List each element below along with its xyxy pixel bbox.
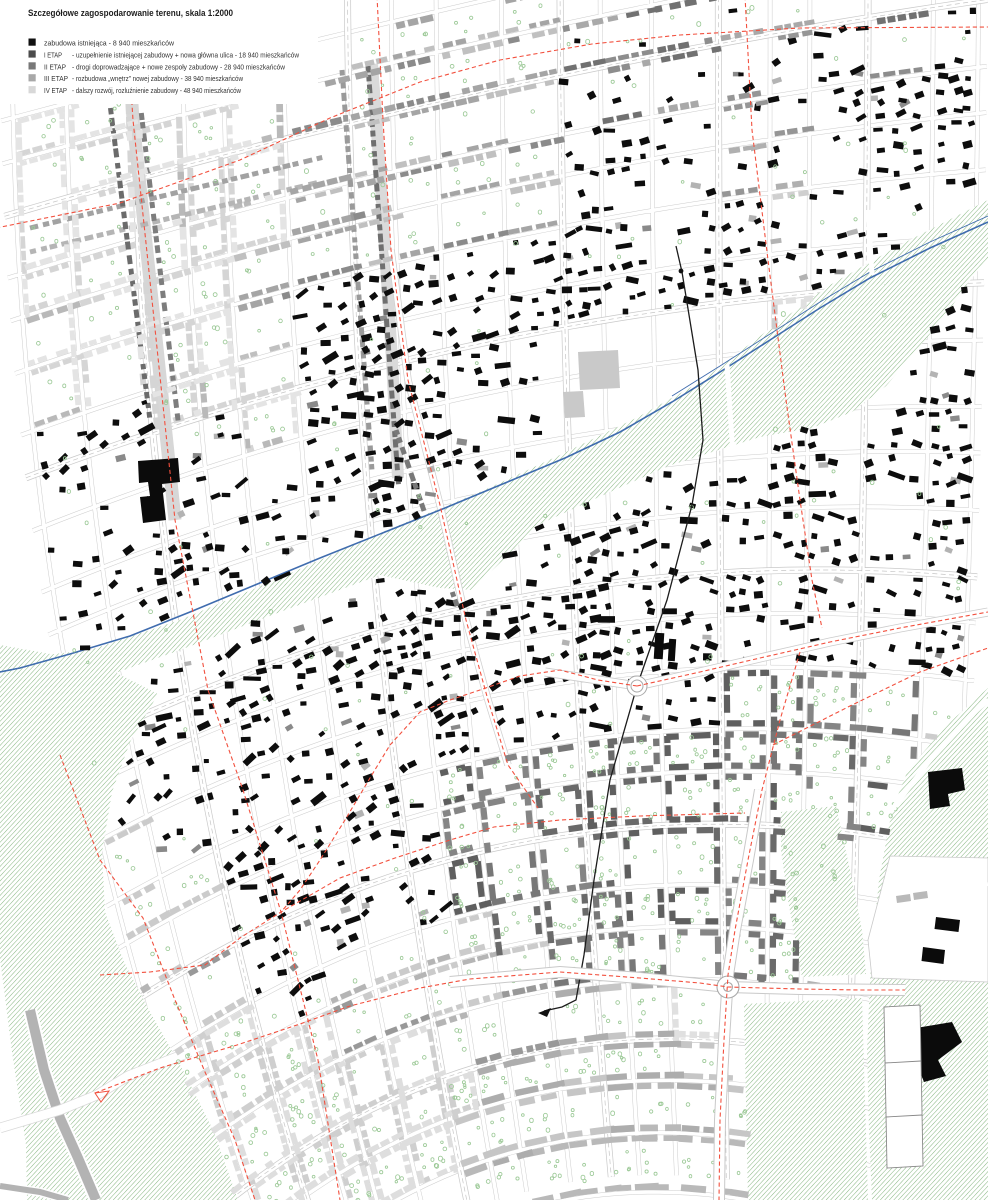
svg-text:zabudowa istniejąca - 8 940 mi: zabudowa istniejąca - 8 940 mieszkańców [44,39,175,48]
svg-text:III ETAP: III ETAP [44,74,68,83]
svg-text:- uzupełnienie istniejącej zab: - uzupełnienie istniejącej zabudowy + no… [72,50,300,59]
svg-text:- rozbudowa „wnętrz” nowej zab: - rozbudowa „wnętrz” nowej zabudowy - 38… [72,74,244,83]
svg-text:- drogi doprowadzające + nowe: - drogi doprowadzające + nowe zespoły za… [72,62,286,71]
svg-text:- dalszy rozwój, rozluźnienie: - dalszy rozwój, rozluźnienie zabudowy -… [72,86,242,95]
svg-text:II ETAP: II ETAP [44,62,66,71]
svg-text:Szczegółowe zagospodarowanie t: Szczegółowe zagospodarowanie terenu, ska… [28,8,233,19]
svg-text:I ETAP: I ETAP [44,50,62,59]
svg-text:IV ETAP: IV ETAP [44,86,67,95]
